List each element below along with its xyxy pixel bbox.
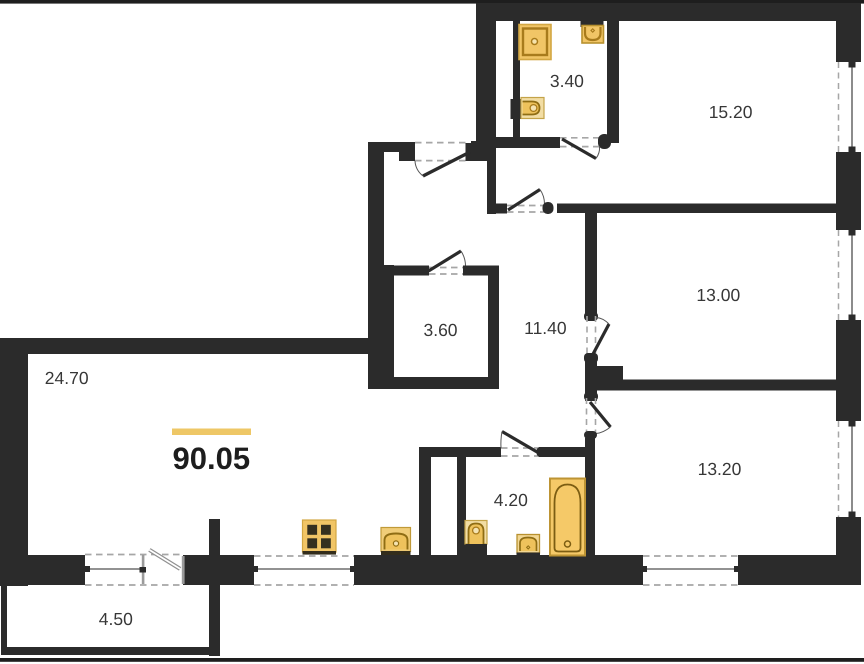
svg-text:13.00: 13.00 (696, 285, 740, 305)
svg-text:11.40: 11.40 (524, 318, 567, 338)
svg-text:24.70: 24.70 (45, 368, 89, 388)
svg-text:3.40: 3.40 (550, 71, 584, 91)
svg-text:90.05: 90.05 (173, 441, 251, 476)
svg-text:4.50: 4.50 (99, 609, 133, 629)
svg-text:4.20: 4.20 (494, 490, 528, 510)
svg-text:3.60: 3.60 (423, 320, 457, 340)
svg-text:15.20: 15.20 (709, 102, 753, 122)
svg-text:13.20: 13.20 (698, 459, 742, 479)
